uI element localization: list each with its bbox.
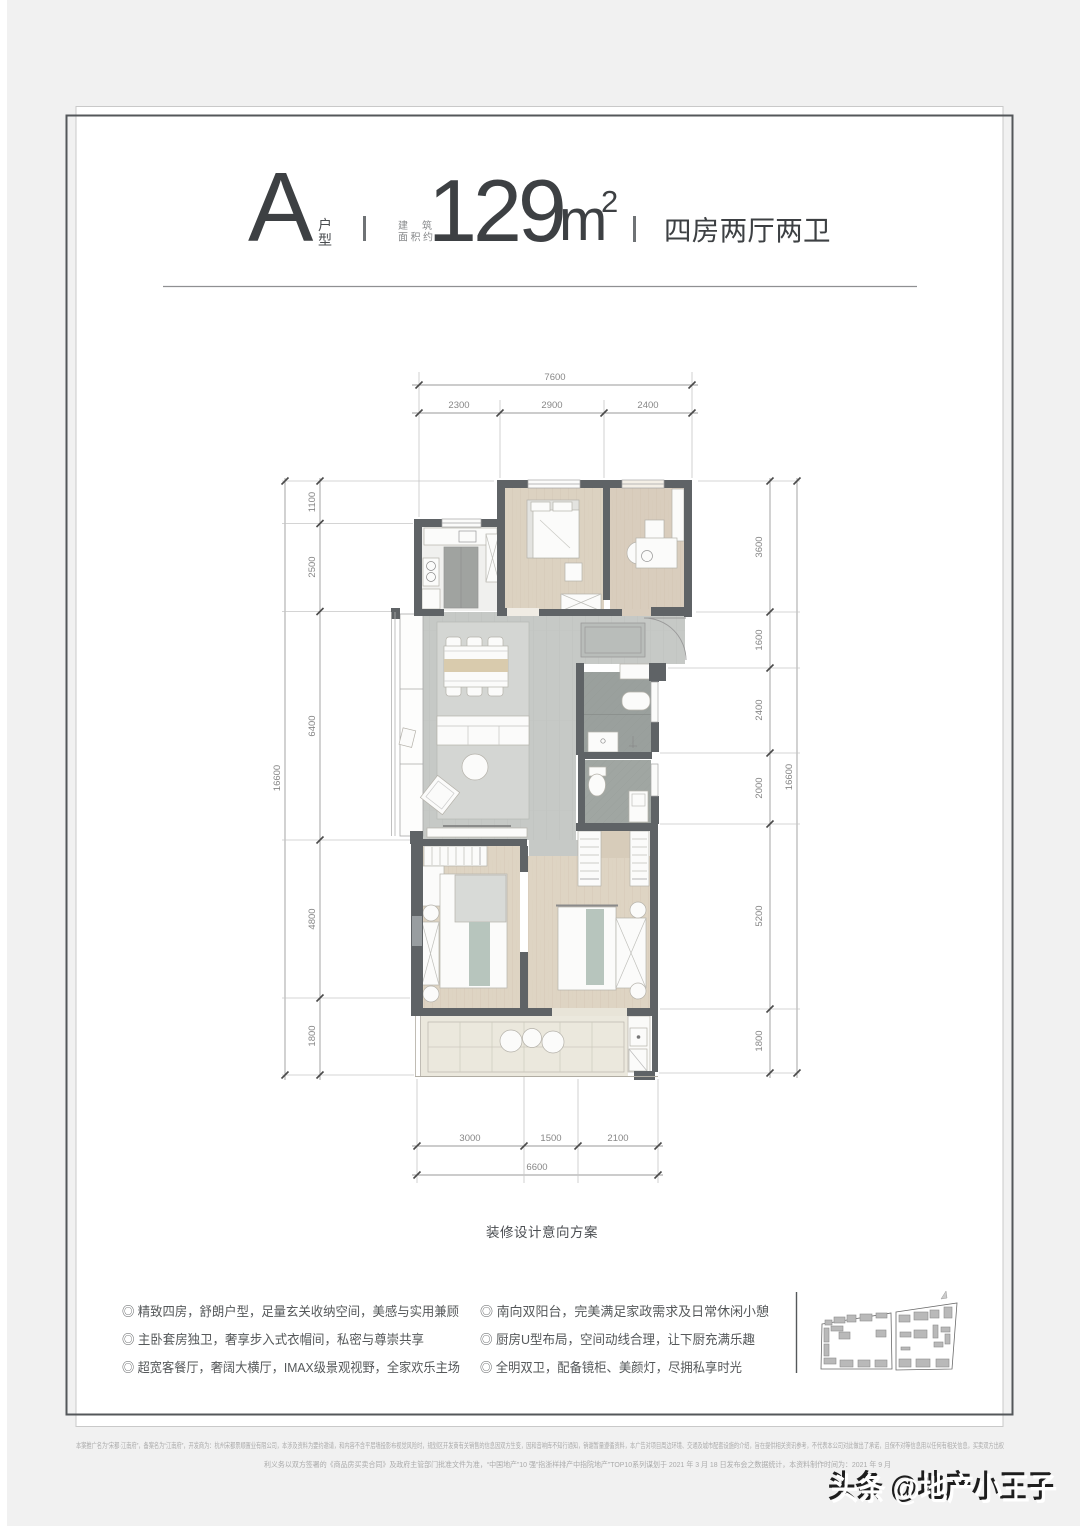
svg-text:16600: 16600 [784, 764, 795, 790]
svg-text:2000: 2000 [754, 777, 765, 798]
svg-text:2100: 2100 [607, 1133, 628, 1144]
svg-text:◎ 厨房U型布局，空间动线合理，让下厨充满乐趣: ◎ 厨房U型布局，空间动线合理，让下厨充满乐趣 [480, 1332, 755, 1347]
svg-text:A: A [248, 152, 314, 262]
svg-text:型: 型 [318, 232, 332, 248]
svg-text:2400: 2400 [754, 699, 765, 720]
svg-text:2400: 2400 [637, 400, 658, 411]
svg-text:本案推广名为“宋都·江南府”，备案名为“江南府”，开发商为：: 本案推广名为“宋都·江南府”，备案名为“江南府”，开发商为：杭州宋都景顺置业有限… [76, 1441, 1004, 1450]
svg-text:6400: 6400 [307, 715, 318, 736]
svg-text:6600: 6600 [526, 1162, 547, 1173]
svg-text:头条 @地产小王子: 头条 @地产小王子 [831, 1472, 1057, 1507]
svg-text:2900: 2900 [541, 400, 562, 411]
svg-text:1100: 1100 [307, 492, 318, 512]
svg-text:1800: 1800 [307, 1025, 318, 1046]
svg-text:装修设计意向方案: 装修设计意向方案 [486, 1224, 598, 1240]
svg-text:户: 户 [318, 217, 332, 233]
svg-text:四房两厅两卫: 四房两厅两卫 [664, 215, 831, 246]
svg-text:◎ 超宽客餐厅，奢阔大横厅，IMAX级景观视野，全家欢乐主场: ◎ 超宽客餐厅，奢阔大横厅，IMAX级景观视野，全家欢乐主场 [122, 1360, 460, 1375]
svg-text:16600: 16600 [272, 765, 283, 791]
svg-text:2: 2 [601, 184, 618, 219]
svg-text:1800: 1800 [754, 1030, 765, 1051]
svg-text:129: 129 [428, 161, 563, 260]
svg-text:4800: 4800 [307, 908, 318, 929]
svg-text:利义务以双方签署的《商品房买卖合同》及政府主管部门批准文件为: 利义务以双方签署的《商品房买卖合同》及政府主管部门批准文件为准，“中国地产”10… [264, 1460, 891, 1469]
svg-text:3000: 3000 [459, 1133, 480, 1144]
svg-text:7600: 7600 [544, 372, 565, 383]
svg-text:◎ 全明双卫，配备镜柜、美颜灯，尽拥私享时光: ◎ 全明双卫，配备镜柜、美颜灯，尽拥私享时光 [480, 1360, 742, 1375]
svg-text:2500: 2500 [307, 556, 318, 577]
svg-text:5200: 5200 [754, 905, 765, 926]
svg-text:1600: 1600 [754, 629, 765, 650]
svg-text:◎ 主卧套房独卫，奢享步入式衣帽间，私密与尊崇共享: ◎ 主卧套房独卫，奢享步入式衣帽间，私密与尊崇共享 [122, 1332, 424, 1347]
svg-text:◎ 精致四房，舒朗户型，足量玄关收纳空间，美感与实用兼顾: ◎ 精致四房，舒朗户型，足量玄关收纳空间，美感与实用兼顾 [122, 1304, 459, 1319]
svg-text:2300: 2300 [448, 400, 469, 411]
svg-text:1500: 1500 [540, 1133, 561, 1144]
svg-text:3600: 3600 [754, 536, 765, 557]
svg-text:◎ 南向双阳台，完美满足家政需求及日常休闲小憩: ◎ 南向双阳台，完美满足家政需求及日常休闲小憩 [480, 1304, 769, 1319]
